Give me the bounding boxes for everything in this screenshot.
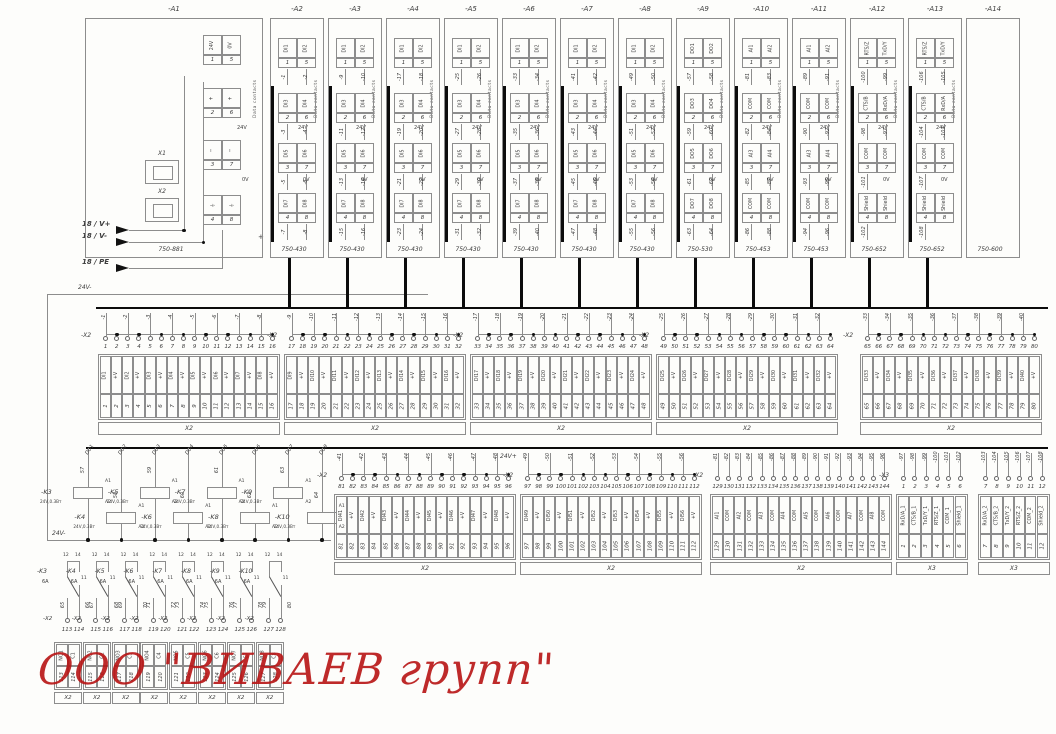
- terminal-circle: [278, 618, 283, 623]
- module-terminal-label-text: AI1: [749, 44, 754, 52]
- terminal-table-number-text: 33: [475, 403, 481, 410]
- terminal-table-label-text: DI26: [683, 369, 688, 380]
- terminal-table-number: 129: [712, 534, 723, 558]
- wire-number: -44: [592, 124, 600, 140]
- terminal-table-number: 104: [600, 534, 611, 558]
- terminal-circle: [609, 336, 614, 341]
- wire-number: -27: [454, 124, 462, 140]
- terminal-table-number: 37: [517, 394, 528, 418]
- bus-junction-dot: [187, 538, 191, 542]
- terminal-table-number: 100: [555, 534, 566, 558]
- terminal-table-number: 22: [342, 394, 353, 418]
- terminal-table-label: DI34: [884, 356, 895, 394]
- module-terminal-label-text: DI6: [478, 149, 483, 157]
- wire-number: -59: [686, 124, 694, 140]
- contact-wire-line: [79, 585, 80, 618]
- contact-amp-rating: 6А: [42, 580, 49, 585]
- terminal-table-number-text: 31: [444, 403, 450, 410]
- module-terminal-number: 3: [916, 163, 935, 173]
- terminal-table-number-text: 57: [750, 403, 756, 410]
- module-terminal-number: 8: [819, 213, 838, 223]
- bus-junction-dot: [120, 538, 124, 542]
- module-terminal-label-text: COM: [807, 97, 812, 108]
- terminal-table-number-text: 58: [761, 403, 767, 410]
- module-terminal-label-text: DI5: [575, 149, 580, 157]
- contact-top-line: [240, 561, 252, 562]
- terminal-table-label-text: +V: [694, 371, 699, 378]
- module-header: -A3: [328, 6, 382, 13]
- wire-number: -6: [302, 174, 310, 190]
- terminal-table-label: +V: [578, 496, 589, 534]
- terminal-table-label-text: +V: [181, 371, 186, 378]
- ethernet-port-label: X2: [145, 189, 179, 195]
- terminal-table-label: +V: [555, 496, 566, 534]
- module-terminal-label-text: DI6: [652, 149, 657, 157]
- terminal-table-number: 32: [453, 394, 464, 418]
- terminal-table-number: 103: [589, 534, 600, 558]
- terminal-table-number: 5: [943, 534, 954, 558]
- module-terminal-label: DI8: [529, 193, 548, 213]
- terminal-circle: [486, 336, 491, 341]
- terminal-table-number: 66: [873, 394, 884, 418]
- terminal-table-number-text: 64: [827, 403, 833, 410]
- terminal-circle: [114, 336, 119, 341]
- terminal-table-label-text: DI55: [659, 509, 664, 520]
- terminal-table-number-text: 140: [837, 541, 843, 552]
- contact-terminal-12: 12: [178, 554, 184, 559]
- terminal-strip-footer: Х2: [470, 422, 652, 435]
- terminal-table-number-text: 19: [311, 403, 317, 410]
- terminal-circle: [661, 336, 666, 341]
- terminal-circle: [783, 336, 788, 341]
- module-bus-accent: [387, 86, 390, 142]
- terminal-circle: [737, 476, 742, 481]
- module-terminal-label: COM: [819, 193, 838, 213]
- terminal-table-label-text: COM: [726, 509, 731, 520]
- module-terminal-number: 5: [529, 58, 548, 68]
- module-bus-accent: [735, 86, 738, 142]
- module-terminal-number: 8: [703, 213, 722, 223]
- wire-number: -105: [940, 69, 948, 85]
- terminal-table-label-text: +V: [575, 371, 580, 378]
- terminal-circle: [575, 336, 580, 341]
- terminal-number: 122: [188, 627, 200, 633]
- terminal-table-label: DI51: [567, 496, 578, 534]
- terminal-circle: [804, 476, 809, 481]
- wire-number: -12: [353, 309, 361, 325]
- terminal-circle: [592, 476, 597, 481]
- module-terminal-number: 1: [858, 58, 877, 68]
- rj45-pins: [153, 166, 173, 180]
- ethernet-port-label: X1: [145, 151, 179, 157]
- contact-top-line: [153, 561, 165, 562]
- terminal-table-label: +V: [222, 356, 233, 394]
- module-bus-accent: [445, 186, 448, 242]
- wire-number: -87: [779, 449, 787, 465]
- terminal-table-label: DI1: [100, 356, 111, 394]
- module-terminal-label: DI1: [452, 38, 471, 58]
- terminal-table-label: DI33: [862, 356, 873, 394]
- terminal-table-number-text: 15: [258, 403, 264, 410]
- module-terminal-label: DI7: [394, 193, 413, 213]
- wire-number: -92: [834, 449, 842, 465]
- psu-terminal-label: −: [222, 140, 241, 160]
- terminal-table-label: +V: [572, 356, 583, 394]
- wire-number: -83: [766, 69, 774, 85]
- terminal-circle: [921, 336, 926, 341]
- plus-bus-line: [528, 474, 695, 475]
- relay-coil-a1: A1: [172, 480, 178, 485]
- terminal-table-number-text: 46: [619, 403, 625, 410]
- contact-amp-rating: 6А: [244, 580, 251, 585]
- wire-number: -81: [712, 449, 720, 465]
- terminal-table-label-text: DI10: [311, 369, 316, 380]
- module-terminal-number: 7: [819, 163, 838, 173]
- terminal-table-number: 86: [392, 534, 403, 558]
- terminal-table-number-text: 144: [881, 541, 887, 552]
- terminal-table-label: RxD/A_1: [898, 496, 909, 534]
- terminal-table-label-text: AI2: [737, 511, 742, 519]
- terminal-circle: [647, 476, 652, 481]
- terminal-table-number-text: 142: [859, 541, 865, 552]
- terminal-table-number: 12: [1037, 534, 1048, 558]
- contact-terminal-12: 12: [92, 554, 98, 559]
- terminal-table-number: 68: [895, 394, 906, 418]
- terminal-table-label: +V: [691, 356, 702, 394]
- contact-amp-rating: 6А: [71, 580, 78, 585]
- terminal-table-label-text: +V: [761, 371, 766, 378]
- terminal-table-label-text: RTS/Z_2: [1017, 505, 1022, 524]
- terminal-table-label-text: +V: [531, 371, 536, 378]
- terminal-number: 126: [246, 627, 258, 633]
- terminal-table-number: 34: [483, 394, 494, 418]
- terminal-table-number-text: 111: [680, 541, 686, 552]
- terminal-number: 11: [1025, 484, 1037, 490]
- terminal-table-number-text: 139: [826, 541, 832, 552]
- terminal-table-number-text: 88: [416, 543, 422, 550]
- terminal-table-label-text: DI18: [497, 369, 502, 380]
- terminal-circle: [876, 336, 881, 341]
- terminal-table-label: +V: [369, 496, 380, 534]
- terminal-table-label: DI39: [996, 356, 1007, 394]
- module-terminal-label: DI2: [297, 38, 316, 58]
- bus-junction-dot: [220, 538, 224, 542]
- terminal-circle: [553, 336, 558, 341]
- do-wire-name: DO2: [118, 444, 128, 456]
- terminal-table-number: 83: [358, 534, 369, 558]
- terminal-table-label: +V: [825, 356, 836, 394]
- terminal-table-label: AI4: [779, 496, 790, 534]
- terminal-table-number: 90: [436, 534, 447, 558]
- terminal-table-label-text: DI37: [954, 369, 959, 380]
- terminal-circle: [860, 476, 865, 481]
- contact-relay-name: -K8: [181, 569, 191, 575]
- terminal-table-label-text: DI25: [661, 369, 666, 380]
- terminal-table-label: +V: [245, 356, 256, 394]
- wire-number: -85: [744, 174, 752, 190]
- module-terminal-label-text: DI2: [304, 44, 309, 52]
- module-terminal-number: 4: [336, 213, 355, 223]
- module-terminal-label: DI4: [471, 93, 490, 113]
- terminal-table-number: 85: [381, 534, 392, 558]
- wire-number: -100: [932, 449, 940, 465]
- module-terminal-label: COM: [800, 193, 819, 213]
- module-header: -A11: [792, 6, 846, 13]
- terminal-table-number: 16: [267, 394, 278, 418]
- psu-terminal-label-text: ⏚: [209, 203, 216, 208]
- module-terminal-label-text: RxD/A: [884, 96, 889, 111]
- terminal-table-label: DI49: [522, 496, 533, 534]
- contact-right-stub: [108, 561, 109, 572]
- module-terminal-number: 3: [684, 163, 703, 173]
- terminal-table-number-text: 7: [983, 544, 989, 548]
- wire-number: -7: [234, 309, 242, 325]
- terminal-circle: [389, 336, 394, 341]
- terminal-circle: [631, 336, 636, 341]
- terminal-table-label-text: +V: [943, 371, 948, 378]
- terminal-table-label-text: DI42: [361, 509, 366, 520]
- terminal-table-number-text: 65: [865, 403, 871, 410]
- terminal-circle: [597, 336, 602, 341]
- terminal-table-number-text: 1: [103, 404, 109, 408]
- module-terminal-number: 8: [761, 213, 780, 223]
- contact-relay-name: -K4: [66, 569, 76, 575]
- terminal-circle: [1006, 476, 1011, 481]
- wire-number: -39: [512, 224, 520, 240]
- module-terminal-label: COM: [877, 143, 896, 163]
- strip-connector-label: -Х2: [72, 617, 81, 623]
- terminal-table-label-text: +V: [876, 371, 881, 378]
- strip-connector-label: -Х3: [879, 473, 889, 479]
- module-terminal-label-text: DI7: [633, 199, 638, 207]
- terminal-circle: [761, 336, 766, 341]
- module-terminal-label-text: DI4: [652, 99, 657, 107]
- relay-rating: 24V,0.3Вт: [107, 500, 129, 504]
- terminal-circle: [898, 336, 903, 341]
- module-terminal-number: 3: [626, 163, 645, 173]
- terminal-number: 80: [1028, 344, 1040, 350]
- module-terminal-number: 5: [877, 58, 896, 68]
- contact-terminal-12: 12: [63, 554, 69, 559]
- terminal-table-number: 87: [403, 534, 414, 558]
- terminal-table-label-text: AI5: [804, 511, 809, 519]
- module-bus-accent: [329, 186, 332, 242]
- terminal-table-number: 140: [834, 534, 845, 558]
- plus-bus-line: [664, 334, 831, 335]
- terminal-table-label: COM: [723, 496, 734, 534]
- wire-number: 64: [313, 487, 321, 503]
- strip-connector-label: -Х2: [43, 617, 52, 623]
- terminal-table-label: COM: [834, 496, 845, 534]
- terminal-circle: [694, 336, 699, 341]
- wire-number: 79: [261, 597, 269, 613]
- terminal-table-label-text: DI33: [865, 369, 870, 380]
- terminal-table-number: 141: [846, 534, 857, 558]
- wire-number: -82: [744, 124, 752, 140]
- wire-number: -102: [955, 449, 963, 465]
- contact-terminal-12: 12: [121, 554, 127, 559]
- module-terminal-label: COM: [935, 143, 954, 163]
- contact-top-line: [269, 561, 281, 562]
- module-terminal-label: DI7: [278, 193, 297, 213]
- module-terminal-number: 6: [355, 113, 374, 123]
- module-terminal-label: DI3: [336, 93, 355, 113]
- terminal-table-label-text: +V: [350, 511, 355, 518]
- contact-wire-line: [281, 585, 282, 618]
- terminal-table-label-text: +V: [828, 371, 833, 378]
- terminal-table-number: 45: [606, 394, 617, 418]
- contact-terminal-12: 12: [149, 554, 155, 559]
- contact-terminal-14: 14: [133, 554, 139, 559]
- terminal-table-label-text: DI36: [932, 369, 937, 380]
- relay-coil: [273, 487, 303, 499]
- rj45-pins: [153, 204, 173, 218]
- wire-number: -89: [801, 449, 809, 465]
- terminal-circle: [817, 336, 822, 341]
- terminal-circle: [672, 336, 677, 341]
- terminal-table-label: COM: [790, 496, 801, 534]
- wire-number: -101: [943, 449, 951, 465]
- wire-number: -35: [907, 309, 915, 325]
- wire-number: -53: [628, 174, 636, 190]
- terminal-table-label-text: AI6: [826, 511, 831, 519]
- terminal-circle: [715, 476, 720, 481]
- terminal-table-number: 15: [256, 394, 267, 418]
- terminal-circle: [865, 336, 870, 341]
- module-bus-accent: [851, 136, 854, 192]
- module-terminal-number: 2: [916, 113, 935, 123]
- module-terminal-label-text: DI5: [517, 149, 522, 157]
- terminal-table-label: +V: [347, 496, 358, 534]
- wire-number: -18: [418, 69, 426, 85]
- terminal-circle: [932, 336, 937, 341]
- module-terminal-number: 3: [858, 163, 877, 173]
- terminal-circle: [311, 336, 316, 341]
- module-terminal-label: DI5: [626, 143, 645, 163]
- terminal-table-label: DI16: [442, 356, 453, 394]
- wire-number: -11: [338, 124, 346, 140]
- module-terminal-label-text: DI1: [285, 44, 290, 52]
- module-terminal-number: 2: [568, 113, 587, 123]
- terminal-circle: [983, 476, 988, 481]
- terminal-table-number: 63: [814, 394, 825, 418]
- wire-number: -30: [769, 309, 777, 325]
- terminal-table-label: DI55: [656, 496, 667, 534]
- terminal-number: 117: [119, 627, 131, 633]
- terminal-circle: [65, 618, 70, 623]
- terminal-table-number: 8: [991, 534, 1002, 558]
- module-terminal-number: 6: [529, 113, 548, 123]
- terminal-circle: [450, 476, 455, 481]
- module-terminal-label-text: DI1: [633, 44, 638, 52]
- terminal-table-label-text: DI38: [976, 369, 981, 380]
- module-terminal-number: 7: [877, 163, 896, 173]
- terminal-table-label-text: DI51: [570, 509, 575, 520]
- terminal-table-label: COM: [857, 496, 868, 534]
- module-terminal-label: DO8: [703, 193, 722, 213]
- terminal-table-label-text: +V: [389, 371, 394, 378]
- terminal-table-label-text: +V: [434, 371, 439, 378]
- terminal-table-number: 105: [611, 534, 622, 558]
- contact-terminal-14: 14: [161, 554, 167, 559]
- module-bus-accent: [503, 86, 506, 142]
- strip-connector-label: -Х2: [101, 617, 110, 623]
- module-terminal-label: DI1: [278, 38, 297, 58]
- wire-number: -81: [744, 69, 752, 85]
- module-terminal-label: DI8: [413, 193, 432, 213]
- terminal-number: 127: [263, 627, 275, 633]
- relay-coil-a1: A1: [205, 505, 211, 510]
- wire-number: -34: [534, 69, 542, 85]
- terminal-table-label: +V: [436, 496, 447, 534]
- module-bus-accent: [561, 86, 564, 142]
- terminal-circle: [828, 336, 833, 341]
- module-terminal-number: 7: [413, 163, 432, 173]
- module-terminal-label-text: COM: [884, 147, 889, 158]
- wire-number: -22: [418, 174, 426, 190]
- terminal-circle: [1040, 476, 1045, 481]
- module-terminal-number: 7: [935, 163, 954, 173]
- plus-bus-line: [342, 474, 509, 475]
- strip-connector-label: -Х2: [129, 617, 138, 623]
- relay-coil-a1: A1: [239, 480, 245, 485]
- module-terminal-label: CTS/B: [916, 93, 935, 113]
- terminal-table-label: +V: [895, 356, 906, 394]
- relay-coil-return: [222, 499, 223, 540]
- module-bus-accent: [851, 86, 854, 142]
- terminal-table-number-text: 67: [887, 403, 893, 410]
- wire-number: -92: [824, 124, 832, 140]
- terminal-table-label: CTS/B_1: [909, 496, 920, 534]
- terminal-table-number-text: 40: [552, 403, 558, 410]
- wire-number: -15: [338, 224, 346, 240]
- terminal-number: 118: [131, 627, 143, 633]
- terminal-number: 125: [234, 627, 246, 633]
- psu-terminal-label-text: +: [210, 96, 215, 100]
- terminal-strip-footer: Х3: [896, 562, 968, 575]
- terminal-table-label-text: CTS/B_1: [912, 505, 917, 525]
- contact-wire-line: [182, 598, 183, 618]
- terminal-circle: [525, 476, 530, 481]
- terminal-table-number: 89: [425, 534, 436, 558]
- module-terminal-number: 4: [452, 213, 471, 223]
- terminal-circle: [659, 476, 664, 481]
- terminal-table-number-text: 11: [1028, 543, 1034, 550]
- module-terminal-label: COM: [800, 93, 819, 113]
- wire-number: -97: [898, 449, 906, 465]
- terminal-number: 112: [688, 484, 700, 490]
- terminal-table-number: 143: [868, 534, 879, 558]
- relay-coil-return: [155, 499, 156, 540]
- module-terminal-number: 2: [742, 113, 761, 123]
- module-terminal-label: DO4: [703, 93, 722, 113]
- terminal-table-label-text: DI32: [817, 369, 822, 380]
- strip-connector-label: -Х2: [453, 333, 463, 339]
- module-part-number: 750-881: [85, 247, 257, 253]
- wire-number: -102: [860, 224, 868, 240]
- terminal-table-label: DI7: [234, 356, 245, 394]
- terminal-table-number: 144: [879, 534, 890, 558]
- terminal-circle: [987, 336, 992, 341]
- module-terminal-number: 3: [394, 163, 413, 173]
- module-terminal-label: DO3: [684, 93, 703, 113]
- terminal-table-number: 110: [667, 534, 678, 558]
- terminal-table-number: 77: [996, 394, 1007, 418]
- module-terminal-number: 1: [684, 58, 703, 68]
- terminal-table-number: 67: [884, 394, 895, 418]
- terminal-table-label: +V: [780, 356, 791, 394]
- terminal-table-number-text: 29: [422, 403, 428, 410]
